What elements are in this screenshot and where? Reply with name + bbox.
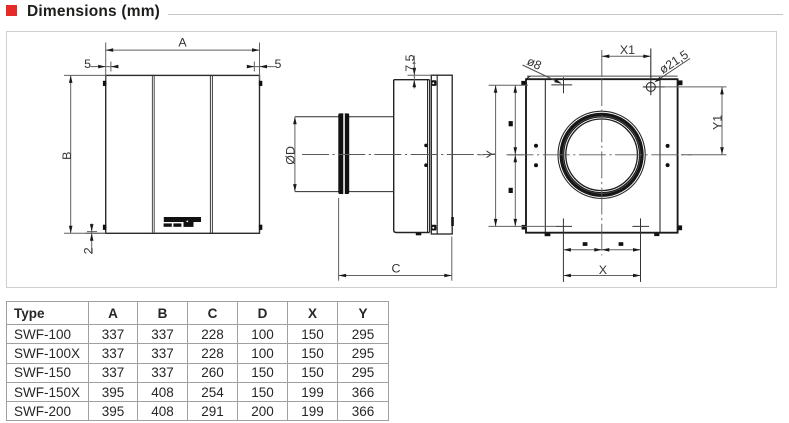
svg-text:X1: X1: [620, 43, 635, 57]
svg-text:7,5: 7,5: [403, 54, 417, 71]
svg-text:C: C: [392, 262, 401, 276]
svg-text:Y1: Y1: [710, 115, 724, 130]
svg-text:ø21,5: ø21,5: [657, 47, 691, 76]
svg-text:B: B: [60, 152, 74, 160]
svg-text:Y: Y: [484, 150, 498, 158]
svg-text:5: 5: [84, 57, 91, 71]
svg-text:ø8: ø8: [525, 54, 544, 73]
svg-text:A: A: [178, 36, 187, 50]
svg-text:5: 5: [274, 57, 281, 71]
svg-text:X: X: [599, 263, 607, 277]
svg-text:ØD: ØD: [283, 146, 297, 165]
svg-text:2: 2: [81, 247, 95, 254]
